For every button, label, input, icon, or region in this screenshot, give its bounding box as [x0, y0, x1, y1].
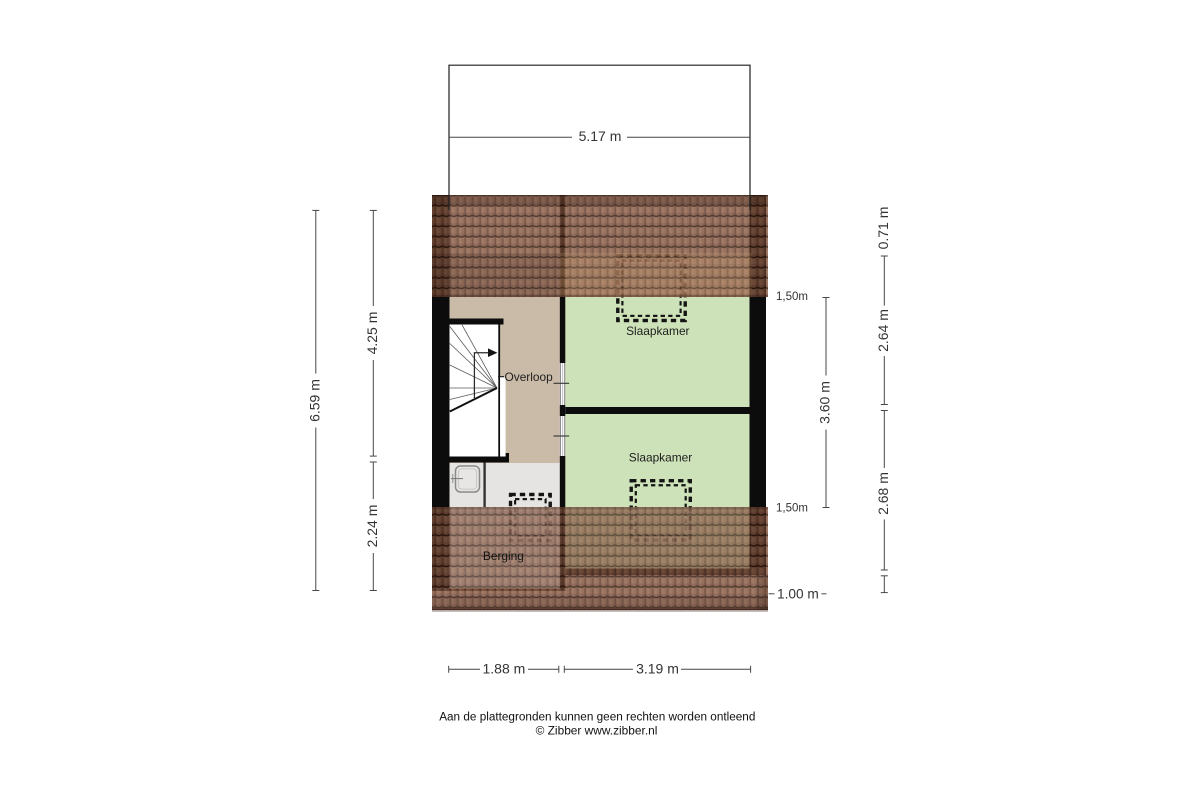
svg-text:Berging: Berging — [483, 549, 524, 563]
svg-text:Slaapkamer: Slaapkamer — [629, 451, 692, 465]
svg-text:1.00 m: 1.00 m — [777, 587, 819, 602]
svg-text:© Zibber www.zibber.nl: © Zibber www.zibber.nl — [536, 724, 658, 738]
svg-text:Overloop: Overloop — [505, 370, 554, 384]
svg-text:2.24 m: 2.24 m — [364, 505, 380, 548]
svg-text:2.68 m: 2.68 m — [875, 472, 891, 515]
svg-text:6.59 m: 6.59 m — [307, 379, 323, 422]
svg-text:1,50m: 1,50m — [776, 502, 808, 514]
svg-text:Slaapkamer: Slaapkamer — [626, 324, 689, 338]
svg-text:Aan de plattegronden kunnen ge: Aan de plattegronden kunnen geen rechten… — [439, 710, 755, 723]
svg-text:3.19 m: 3.19 m — [636, 660, 679, 676]
svg-text:4.25 m: 4.25 m — [364, 312, 380, 355]
svg-text:5.17 m: 5.17 m — [579, 128, 622, 144]
svg-text:2.64 m: 2.64 m — [875, 309, 891, 352]
svg-text:1,50m: 1,50m — [776, 291, 808, 303]
svg-text:0.71 m: 0.71 m — [875, 207, 891, 250]
svg-text:1.88 m: 1.88 m — [482, 660, 525, 676]
svg-text:3.60 m: 3.60 m — [817, 381, 833, 424]
